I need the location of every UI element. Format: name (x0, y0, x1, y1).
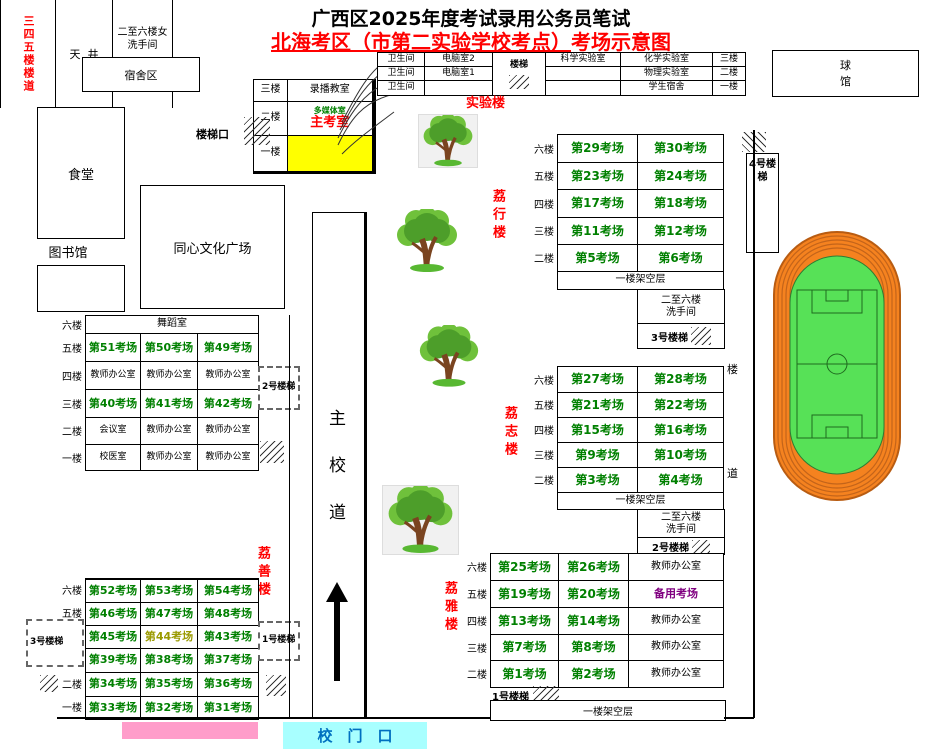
exam-room-cell: 第27考场 (558, 367, 638, 393)
exam-room-cell: 第4考场 (638, 468, 724, 493)
exam-room-cell: 第8考场 (559, 635, 629, 661)
exam-room-cell: 第11考场 (558, 218, 638, 245)
office-cell: 教师办公室 (198, 362, 259, 390)
floor-label: 四楼 (55, 361, 85, 389)
stairs-hatch-icon (244, 117, 270, 145)
floor-label: 三楼 (523, 217, 557, 244)
culture-plaza-box: 同心文化广场 (140, 185, 285, 309)
exam-room-cell: 第18考场 (638, 190, 724, 218)
washroom-box: 二至六楼 洗手间 (637, 509, 725, 539)
building-lizhi-label: 荔志楼 (503, 406, 516, 460)
exam-room-cell: 第6考场 (638, 245, 724, 272)
exam-room-cell: 第32考场 (141, 696, 198, 719)
clinic-cell: 校医室 (86, 445, 141, 471)
floor-label: 三楼 (523, 442, 557, 467)
exam-room-cell: 第35考场 (141, 672, 198, 696)
exam-room-cell: 第7考场 (491, 635, 559, 661)
exam-room-cell: 第14考场 (559, 608, 629, 635)
building-lishan-upper: 六楼 五楼 四楼 三楼 二楼 一楼 舞蹈室 第51考场第50考场第49考场 教师… (55, 315, 259, 471)
office-cell: 教师办公室 (629, 608, 724, 635)
exam-room-cell: 第16考场 (638, 418, 724, 443)
floor-label: 六楼 (523, 366, 557, 392)
building-liya-label: 荔雅楼 (443, 581, 456, 635)
liya-table: 第25考场第26考场教师办公室 第19考场第20考场备用考场 第13考场第14考… (490, 553, 724, 688)
stairs-hatch-icon (509, 75, 529, 89)
exam-room-cell: 第29考场 (558, 135, 638, 163)
floor-labels: 六楼 五楼 四楼 三楼 二楼 (458, 553, 490, 687)
exam-room-cell: 第1考场 (491, 661, 559, 688)
floor-label: 二楼 (523, 244, 557, 271)
stilt-floor-cell: 一楼架空层 (558, 493, 724, 510)
stilt-floor-cell: 一楼架空层 (558, 272, 724, 290)
building-lizhi: 六楼 五楼 四楼 三楼 二楼 第27考场第28考场 第21考场第22考场 第15… (523, 366, 724, 510)
main-road-label-2: 校 (325, 451, 350, 476)
tree-icon (391, 209, 463, 273)
exam-room-cell: 第34考场 (86, 672, 141, 696)
floor-label: 四楼 (523, 189, 557, 217)
floor-label: 三楼 (254, 80, 288, 102)
exam-room-cell: 第12考场 (638, 218, 724, 245)
exam-room-cell: 第25考场 (491, 554, 559, 581)
running-track (768, 224, 908, 506)
building-lixing-label: 荔行楼 (491, 189, 504, 243)
exam-room-cell: 第47考场 (141, 602, 198, 625)
exam-room-cell: 第23考场 (558, 163, 638, 190)
floor-label: 二楼 (55, 671, 85, 695)
chemistry-lab-cell: 化学实验室 (621, 53, 713, 67)
exam-room-cell: 第46考场 (86, 602, 141, 625)
floor-label: 一楼 (713, 81, 746, 96)
exam-room-cell: 第48考场 (198, 602, 259, 625)
lab-stair-label: 楼梯 (493, 61, 545, 70)
building-lixing: 六楼 五楼 四楼 三楼 二楼 第29考场第30考场 第23考场第24考场 第17… (523, 134, 724, 290)
floor-label: 二楼 (523, 467, 557, 492)
washroom-box: 二至六楼 洗手间 (637, 289, 725, 325)
floor-label: 六楼 (55, 315, 85, 333)
exam-room-cell: 第3考场 (558, 468, 638, 493)
direction-arrow-shaft (334, 601, 340, 681)
exam-room-cell: 第42考场 (198, 390, 259, 418)
stair-exit-label: 楼梯口 (196, 126, 229, 142)
exam-site-map: 广西区2025年度考试录用公务员笔试 北海考区（市第二实验学校考点）考场示意图 … (0, 0, 942, 751)
floor-label: 五楼 (55, 333, 85, 361)
washroom-cell: 卫生间 (378, 67, 425, 81)
computer-room-cell: 电脑室1 (425, 67, 493, 81)
floor-label: 三楼 (458, 634, 490, 660)
stairs-hatch-icon (691, 327, 711, 345)
washroom-line1: 二至六楼 (661, 295, 701, 308)
empty-cell (546, 67, 621, 81)
stair2-dashed-box: 2号楼梯 (258, 366, 300, 410)
floor-label: 五楼 (458, 580, 490, 607)
lab-building-label: 实验楼 (466, 92, 505, 111)
side-road-label-1: 楼 (727, 361, 738, 377)
science-lab-cell: 科学实验室 (546, 53, 621, 67)
campus-wall (57, 717, 490, 719)
ball-hall-label-2: 馆 (840, 74, 851, 89)
campus-wall (289, 315, 290, 718)
tree-icon (415, 325, 483, 388)
campus-wall (724, 717, 754, 719)
office-cell: 教师办公室 (141, 362, 198, 390)
exam-room-cell: 第36考场 (198, 672, 259, 696)
floor-label: 二楼 (458, 660, 490, 687)
floor-label: 三楼 (713, 53, 746, 67)
stairs-hatch-icon (40, 675, 58, 692)
backup-room-cell: 备用考场 (629, 581, 724, 608)
exam-room-cell: 第52考场 (86, 579, 141, 602)
pink-strip (122, 722, 258, 739)
exam-room-cell: 第40考场 (86, 390, 141, 418)
floor-label: 一楼 (55, 695, 85, 718)
exam-room-cell: 第50考场 (141, 334, 198, 362)
exam-room-cell: 第9考场 (558, 443, 638, 468)
office-cell: 教师办公室 (629, 661, 724, 688)
exam-room-cell: 第30考场 (638, 135, 724, 163)
exam-room-cell: 第22考场 (638, 393, 724, 418)
ball-hall-box: 球 馆 (772, 50, 919, 97)
exam-room-cell: 第19考场 (491, 581, 559, 608)
floor-label: 六楼 (523, 134, 557, 162)
floor-label: 二楼 (55, 417, 85, 444)
stair2-label: 2号楼梯 (652, 539, 689, 554)
tree-icon (382, 485, 459, 555)
office-cell: 教师办公室 (86, 362, 141, 390)
dance-room-cell: 舞蹈室 (86, 316, 259, 334)
washroom-line1: 二至六楼 (661, 512, 701, 524)
meeting-room-cell: 会议室 (86, 418, 141, 445)
office-cell: 教师办公室 (629, 554, 724, 581)
side-road-label-2: 道 (727, 465, 738, 481)
exam-room-cell: 第38考场 (141, 648, 198, 672)
floor-label: 四楼 (523, 417, 557, 442)
exam-room-cell: 第21考场 (558, 393, 638, 418)
exam-room-cell: 第10考场 (638, 443, 724, 468)
subtitle-underlined: 北海考区（市第二实验学校考点） (271, 30, 571, 54)
lishan-lower-table: 第52考场第53考场第54考场 第46考场第47考场第48考场 第45考场第44… (85, 578, 259, 720)
floor-label: 二楼 (713, 67, 746, 81)
floor-labels: 六楼 五楼 四楼 三楼 二楼 一楼 (55, 315, 85, 470)
exam-room-cell: 第20考场 (559, 581, 629, 608)
subtitle-tail: 考场示意图 (571, 30, 671, 54)
lishan-upper-table: 舞蹈室 第51考场第50考场第49考场 教师办公室教师办公室教师办公室 第40考… (85, 315, 259, 471)
exam-room-cell: 第33考场 (86, 696, 141, 719)
computer-room-cell: 电脑室2 (425, 53, 493, 67)
lab-building-table: 卫生间 电脑室2 楼梯 科学实验室 化学实验室 三楼 卫生间 电脑室1 物理实验… (377, 52, 746, 96)
library-annex-box (37, 265, 125, 312)
washroom-cell: 卫生间 (378, 81, 425, 96)
student-dorm-cell: 学生宿舍 (621, 81, 713, 96)
exam-room-cell: 第28考场 (638, 367, 724, 393)
exam-room-cell: 第54考场 (198, 579, 259, 602)
physics-lab-cell: 物理实验室 (621, 67, 713, 81)
washroom-line2: 洗手间 (666, 524, 696, 536)
school-gate: 校 门 口 (283, 722, 427, 749)
floor-label: 三楼 (55, 389, 85, 417)
exam-room-cell: 第43考场 (198, 625, 259, 648)
exam-room-cell: 第24考场 (638, 163, 724, 190)
dormitory-box: 宿舍区 (82, 57, 200, 92)
stair3-label: 3号楼梯 (651, 329, 688, 344)
washroom-line2: 洗手间 (666, 307, 696, 320)
stair3-box: 3号楼梯 (637, 323, 725, 349)
stairs-hatch-icon (692, 540, 710, 553)
stair3-dashed-box: 3号楼梯 (26, 619, 84, 667)
office-cell: 教师办公室 (141, 418, 198, 445)
exam-room-cell: 第41考场 (141, 390, 198, 418)
lab-stair-cell: 楼梯 (493, 53, 546, 96)
tree-icon (418, 114, 478, 168)
stairs-hatch-icon (260, 441, 284, 463)
campus-wall (753, 130, 755, 718)
exam-room-cell: 第31考场 (198, 696, 259, 719)
exam-room-cell: 第13考场 (491, 608, 559, 635)
floor-label: 六楼 (55, 578, 85, 601)
floor-label: 四楼 (458, 607, 490, 634)
office-cell: 教师办公室 (198, 418, 259, 445)
floor-labels: 六楼 五楼 四楼 三楼 二楼 (523, 366, 557, 492)
exam-room-cell: 第17考场 (558, 190, 638, 218)
main-road-label-3: 道 (325, 498, 350, 523)
exam-room-cell: 第26考场 (559, 554, 629, 581)
stilt-floor-box: 一楼架空层 (490, 700, 726, 721)
lixing-table: 第29考场第30考场 第23考场第24考场 第17考场第18考场 第11考场第1… (557, 134, 724, 290)
building-liya: 六楼 五楼 四楼 三楼 二楼 第25考场第26考场教师办公室 第19考场第20考… (458, 553, 724, 688)
building-lishan-lower: 六楼 五楼 四楼 三楼 二楼 一楼 第52考场第53考场第54考场 第46考场第… (55, 578, 259, 720)
exam-room-44-cell: 第44考场 (141, 625, 198, 648)
floor-labels: 六楼 五楼 四楼 三楼 二楼 (523, 134, 557, 271)
exam-room-cell: 第5考场 (558, 245, 638, 272)
main-road-label-1: 主 (325, 404, 350, 429)
exam-room-cell: 第2考场 (559, 661, 629, 688)
exam-room-cell: 第49考场 (198, 334, 259, 362)
exam-room-cell: 第45考场 (86, 625, 141, 648)
floor-label: 五楼 (523, 162, 557, 189)
exam-room-cell: 第39考场 (86, 648, 141, 672)
library-label: 图书馆 (36, 242, 100, 261)
stair1-dashed-box: 1号楼梯 (258, 621, 300, 661)
floor-label: 六楼 (458, 553, 490, 580)
ball-hall-label-1: 球 (840, 58, 851, 73)
exam-room-cell: 第15考场 (558, 418, 638, 443)
exam-room-cell: 第51考场 (86, 334, 141, 362)
empty-cell (546, 81, 621, 96)
office-cell: 教师办公室 (141, 445, 198, 471)
canteen-box: 食堂 (37, 107, 125, 239)
direction-arrow-icon (326, 582, 348, 602)
office-cell: 教师办公室 (629, 635, 724, 661)
floor-label: 五楼 (523, 392, 557, 417)
lizhi-table: 第27考场第28考场 第21考场第22考场 第15考场第16考场 第9考场第10… (557, 366, 724, 510)
floor-label: 一楼 (55, 444, 85, 470)
exam-room-cell: 第37考场 (198, 648, 259, 672)
exam-room-cell: 第53考场 (141, 579, 198, 602)
stairs-hatch-icon (266, 675, 286, 696)
washroom-cell: 卫生间 (378, 53, 425, 67)
office-cell: 教师办公室 (198, 445, 259, 471)
